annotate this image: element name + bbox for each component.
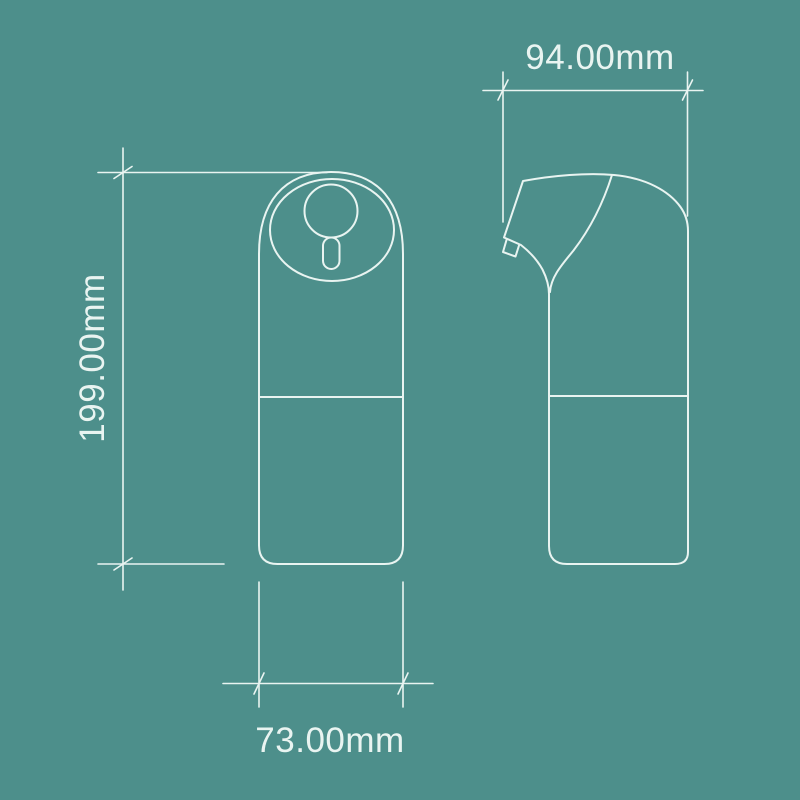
diagram-background (0, 0, 800, 800)
height-dimension-label: 199.00mm (73, 273, 112, 442)
dimension-diagram: 199.00mm 94.00mm 73.00mm (0, 0, 800, 800)
diagram-canvas: 199.00mm 94.00mm 73.00mm (0, 0, 800, 800)
depth-dimension-label: 94.00mm (525, 38, 674, 77)
width-dimension-label: 73.00mm (255, 721, 404, 760)
